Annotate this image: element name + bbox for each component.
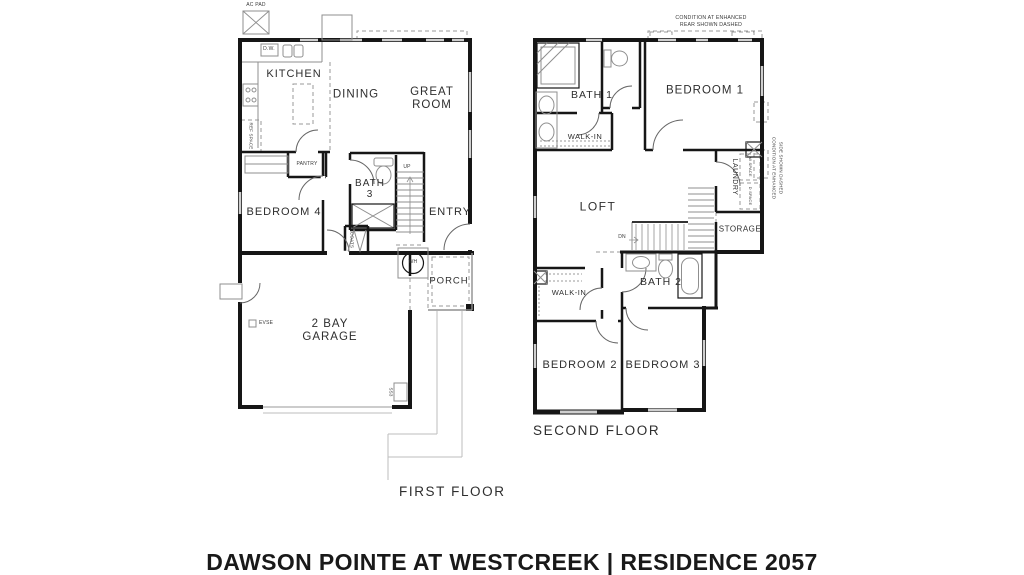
- great-room-label: GREAT ROOM: [403, 86, 461, 112]
- note-side-line1: CONDITION AT ENHANCED: [771, 137, 776, 199]
- floor-plan-linework: [0, 0, 1024, 575]
- garage-label: 2 BAY GARAGE: [297, 318, 363, 344]
- toilet-icon: [374, 158, 393, 166]
- coats-label: COATS: [349, 232, 354, 248]
- floor-plan-sheet: AC PAD KITCHEN DINING GREAT ROOM D.W. RE…: [0, 0, 1024, 575]
- stair-direction-arrow: [407, 177, 413, 234]
- toilet-icon-3: [659, 254, 672, 260]
- bedroom-3-label: BEDROOM 3: [625, 359, 700, 371]
- sink-icon: [283, 45, 292, 57]
- dishwasher-label: D.W.: [263, 47, 275, 53]
- note-side-line2: SIDE SHOWN DASHED: [778, 142, 783, 194]
- storage-label: STORAGE: [719, 226, 761, 235]
- ref-space-label: REF SPACE: [248, 123, 253, 150]
- dining-label: DINING: [333, 89, 379, 102]
- shower-icon: [537, 43, 579, 88]
- bedroom-1-label: BEDROOM 1: [666, 85, 744, 98]
- ss3-box: [394, 383, 407, 401]
- entry-label: ENTRY: [429, 206, 471, 218]
- toilet-icon-2: [604, 50, 611, 67]
- bedroom-2-label: BEDROOM 2: [542, 359, 617, 371]
- second-floor-caption: SECOND FLOOR: [533, 423, 660, 438]
- evse-label: EVSE: [259, 321, 273, 327]
- bath-1-label: BATH 1: [571, 90, 613, 102]
- kitchen-counter: [242, 42, 322, 148]
- ss3-label: SS3: [388, 387, 393, 396]
- note-rear-line1: CONDITION AT ENHANCED: [675, 16, 746, 22]
- up-label: UP: [403, 165, 410, 171]
- loft-label: LOFT: [580, 200, 617, 213]
- first-floor-plan: [220, 11, 474, 480]
- dn-label: DN: [618, 235, 626, 241]
- dryer-space-label: D SPACE: [748, 187, 752, 206]
- walk-in-bottom-label: WALK-IN: [552, 289, 586, 297]
- kitchen-label: KITCHEN: [266, 68, 321, 80]
- porch-label: PORCH: [429, 277, 468, 288]
- first-floor-caption: FIRST FLOOR: [399, 484, 506, 499]
- vanity-icon: [536, 92, 557, 148]
- stairs-down: [688, 188, 714, 248]
- walk-in-top-label: WALK-IN: [568, 133, 602, 141]
- evse-icon: [249, 320, 256, 327]
- wh-label: WH: [409, 260, 418, 266]
- page-title: DAWSON POINTE AT WESTCREEK | RESIDENCE 2…: [0, 549, 1024, 575]
- bath-3-label: BATH 3: [351, 178, 389, 200]
- ac-pad-label: AC PAD: [246, 3, 265, 9]
- bath-2-label: BATH 2: [640, 277, 682, 289]
- fireplace-box: [322, 15, 352, 40]
- range-icon: [243, 84, 258, 106]
- bedroom-4-label: BEDROOM 4: [246, 206, 321, 218]
- washer-space-label: W SPACE: [748, 157, 752, 177]
- laundry-label: LAUNDRY: [730, 159, 738, 196]
- stair-down-arrow: [629, 237, 638, 243]
- pantry-label: PANTRY: [296, 162, 317, 168]
- note-rear-line2: REAR SHOWN DASHED: [680, 23, 742, 29]
- stair-railing: [636, 224, 684, 250]
